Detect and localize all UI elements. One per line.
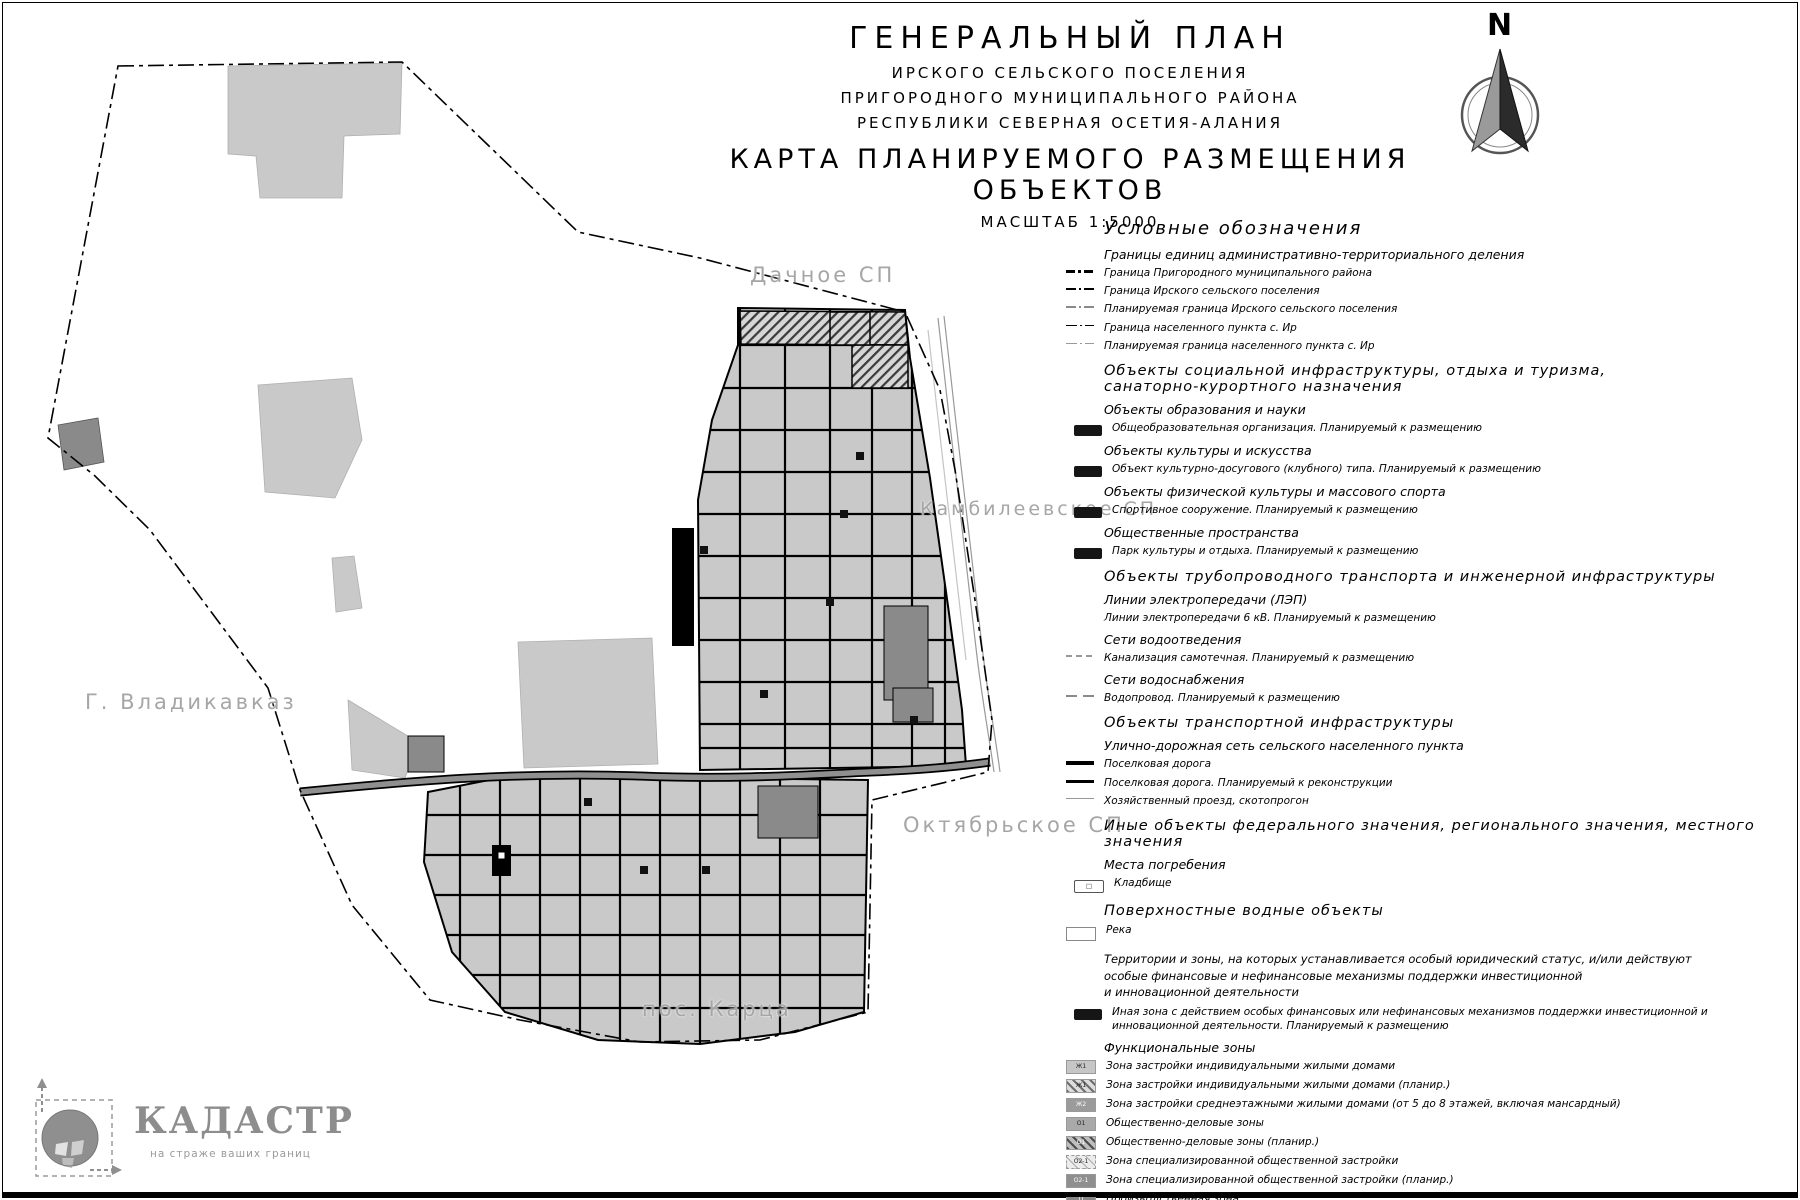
- legend-paragraph: Территории и зоны, на которых устанавлив…: [1066, 951, 1796, 1001]
- s-icon-cemetery-symbol: □: [1074, 880, 1104, 893]
- legend-subheader: Сети водоснабжения: [1066, 672, 1796, 687]
- legend-subheader: Функциональные зоны: [1066, 1040, 1796, 1055]
- legend-item: Хозяйственный проезд, скотопрогон: [1066, 794, 1796, 808]
- s-dashed-gray-symbol: [1066, 655, 1094, 657]
- legend-item: Общеобразовательная организация. Планиру…: [1066, 421, 1796, 436]
- legend: Условные обозначения Границы единиц адми…: [1066, 218, 1796, 1200]
- legend-zone: О1Общественно-деловые зоны (планир.): [1066, 1135, 1796, 1150]
- settlement-south: [408, 736, 870, 1050]
- legend-label: Зона специализированной общественной зас…: [1106, 1173, 1454, 1187]
- legend-subheader: Объекты образования и науки: [1066, 402, 1796, 417]
- legend-label: Граница Ирского сельского поселения: [1104, 284, 1320, 298]
- legend-item: Граница Пригородного муниципального райо…: [1066, 266, 1796, 280]
- legend-zone: Ж2Зона застройки среднеэтажными жилыми д…: [1066, 1097, 1796, 1112]
- legend-zone: О2-1Зона специализированной общественной…: [1066, 1173, 1796, 1188]
- legend-label: Границы единиц административно-территори…: [1104, 247, 1524, 262]
- z-o1-symbol: О1: [1066, 1117, 1096, 1131]
- logo-name: КАДАСТР: [134, 1100, 354, 1142]
- s-icon-black-symbol: [1074, 466, 1102, 477]
- legend-subheader: Сети водоотведения: [1066, 632, 1796, 647]
- legend-label: Иные объекты федерального значения, реги…: [1104, 818, 1796, 850]
- s-solid-thick-symbol: [1066, 761, 1094, 765]
- legend-label: Общеобразовательная организация. Планиру…: [1112, 421, 1482, 435]
- legend-sectionheader: Объекты социальной инфраструктуры, отдых…: [1066, 363, 1796, 395]
- legend-label: Парк культуры и отдыха. Планируемый к ра…: [1112, 544, 1418, 558]
- legend-label: Общественно-деловые зоны (планир.): [1106, 1135, 1319, 1149]
- legend-label: Линии электропередачи 6 кВ. Планируемый …: [1104, 611, 1436, 625]
- s-dashdot-gray-symbol: [1066, 306, 1094, 308]
- map-name: КАРТА ПЛАНИРУЕМОГО РАЗМЕЩЕНИЯ ОБЪЕКТОВ: [690, 144, 1450, 206]
- s-dashdot-symbol: [1066, 288, 1094, 290]
- legend-sectionheader: Объекты транспортной инфраструктуры: [1066, 715, 1796, 731]
- title-block: ГЕНЕРАЛЬНЫЙ ПЛАН ИРСКОГО СЕЛЬСКОГО ПОСЕЛ…: [690, 22, 1450, 232]
- legend-label: Объекты социальной инфраструктуры, отдых…: [1104, 363, 1606, 395]
- legend-item: Парк культуры и отдыха. Планируемый к ра…: [1066, 544, 1796, 559]
- legend-label: Граница Пригородного муниципального райо…: [1104, 266, 1372, 280]
- legend-label: Территории и зоны, на которых устанавлив…: [1104, 951, 1692, 1001]
- legend-label: Объект культурно-досугового (клубного) т…: [1112, 462, 1541, 476]
- plan-sheet: Дачное СП Камбилеевское СП Г. Владикавка…: [0, 0, 1800, 1200]
- plan-subtitle-settlement: ИРСКОГО СЕЛЬСКОГО ПОСЕЛЕНИЯ: [690, 65, 1450, 82]
- legend-label: Граница населенного пункта с. Ир: [1104, 321, 1297, 335]
- plan-title: ГЕНЕРАЛЬНЫЙ ПЛАН: [690, 22, 1450, 57]
- legend-label: Места погребения: [1104, 857, 1226, 872]
- s-none-symbol: [1066, 615, 1094, 616]
- map-label-vladikavkaz: Г. Владикавказ: [85, 690, 297, 714]
- legend-zone: О1Общественно-деловые зоны: [1066, 1116, 1796, 1131]
- z-o1p-symbol: О1: [1066, 1136, 1096, 1150]
- s-icon-black-symbol: [1074, 1009, 1102, 1020]
- z-zh2-symbol: Ж2: [1066, 1098, 1096, 1112]
- plan-subtitle-republic: РЕСПУБЛИКИ СЕВЕРНАЯ ОСЕТИЯ-АЛАНИЯ: [690, 115, 1450, 132]
- z-o21-symbol: О2-1: [1066, 1155, 1096, 1169]
- legend-label: Сети водоснабжения: [1104, 672, 1244, 687]
- legend-label: Зона застройки индивидуальными жилыми до…: [1106, 1059, 1395, 1073]
- z-o21p-symbol: О2-1: [1066, 1174, 1096, 1188]
- legend-item: □Кладбище: [1066, 876, 1796, 893]
- legend-item: Объект культурно-досугового (клубного) т…: [1066, 462, 1796, 477]
- legend-label: Планируемая граница населенного пункта с…: [1104, 339, 1375, 353]
- legend-label: Зона застройки среднеэтажными жилыми дом…: [1106, 1097, 1621, 1111]
- legend-item: Планируемая граница Ирского сельского по…: [1066, 302, 1796, 316]
- legend-subheader: Объекты физической культуры и массового …: [1066, 484, 1796, 499]
- legend-item: Поселковая дорога. Планируемый к реконст…: [1066, 776, 1796, 790]
- legend-item: Иная зона с действием особых финансовых …: [1066, 1005, 1796, 1033]
- legend-item: Водопровод. Планируемый к размещению: [1066, 691, 1796, 705]
- legend-item: Планируемая граница населенного пункта с…: [1066, 339, 1796, 353]
- legend-label: Поверхностные водные объекты: [1104, 903, 1384, 919]
- s-dashdot-thin-symbol: [1066, 325, 1094, 327]
- s-dashdot-bold-symbol: [1066, 270, 1094, 273]
- s-icon-black-symbol: [1074, 507, 1102, 518]
- legend-subheader: Объекты культуры и искусства: [1066, 443, 1796, 458]
- legend-subheader: Линии электропередачи (ЛЭП): [1066, 592, 1796, 607]
- legend-label: Иная зона с действием особых финансовых …: [1112, 1005, 1708, 1033]
- s-icon-black-symbol: [1074, 548, 1102, 559]
- legend-label: Хозяйственный проезд, скотопрогон: [1104, 794, 1309, 808]
- s-dashdot-gray-thin-symbol: [1066, 343, 1094, 345]
- legend-subheader: Границы единиц административно-территори…: [1066, 247, 1796, 262]
- legend-label: Водопровод. Планируемый к размещению: [1104, 691, 1340, 705]
- logo-tagline: на страже ваших границ: [150, 1148, 311, 1160]
- legend-sectionheader: Поверхностные водные объекты: [1066, 903, 1796, 919]
- legend-label: Поселковая дорога. Планируемый к реконст…: [1104, 776, 1393, 790]
- s-solid-thick-symbol: [1066, 780, 1094, 784]
- legend-zone: Ж1Зона застройки индивидуальными жилыми …: [1066, 1059, 1796, 1074]
- s-icon-black-symbol: [1074, 425, 1102, 436]
- legend-item: Река: [1066, 923, 1796, 941]
- legend-label: Улично-дорожная сеть сельского населенно…: [1104, 738, 1464, 753]
- legend-label: Линии электропередачи (ЛЭП): [1104, 592, 1307, 607]
- legend-label: Объекты транспортной инфраструктуры: [1104, 715, 1454, 731]
- s-solid-thin-gray-symbol: [1066, 798, 1094, 799]
- legend-label: Кладбище: [1114, 876, 1172, 890]
- legend-label: Объекты образования и науки: [1104, 402, 1306, 417]
- legend-item: Граница населенного пункта с. Ир: [1066, 321, 1796, 335]
- plan-subtitle-district: ПРИГОРОДНОГО МУНИЦИПАЛЬНОГО РАЙОНА: [690, 90, 1450, 107]
- legend-zone: О2-1Зона специализированной общественной…: [1066, 1154, 1796, 1169]
- z-zh1-symbol: Ж1: [1066, 1060, 1096, 1074]
- legend-label: Зона застройки индивидуальными жилыми до…: [1106, 1078, 1450, 1092]
- sheet-bottom-rule: [2, 1192, 1798, 1197]
- legend-subheader: Общественные пространства: [1066, 525, 1796, 540]
- legend-title: Условные обозначения: [1104, 218, 1796, 239]
- legend-sectionheader: Объекты трубопроводного транспорта и инж…: [1066, 569, 1796, 585]
- s-longdash-gray-symbol: [1066, 695, 1094, 697]
- legend-subheader: Места погребения: [1066, 857, 1796, 872]
- north-label: N: [1450, 8, 1550, 43]
- z-zh1p-symbol: Ж1: [1066, 1079, 1096, 1093]
- legend-label: Канализация самотечная. Планируемый к ра…: [1104, 651, 1414, 665]
- dark-patch-west: [58, 418, 104, 470]
- legend-label: Объекты культуры и искусства: [1104, 443, 1312, 458]
- legend-label: Функциональные зоны: [1104, 1040, 1255, 1055]
- legend-item: Линии электропередачи 6 кВ. Планируемый …: [1066, 611, 1796, 625]
- legend-blocks: Границы единиц административно-территори…: [1066, 247, 1796, 1200]
- legend-label: Река: [1106, 923, 1132, 937]
- map-label-dachnoe-sp: Дачное СП: [750, 263, 895, 287]
- kadastr-logo: КАДАСТР на страже ваших границ: [22, 1072, 352, 1182]
- legend-item: Спортивное сооружение. Планируемый к раз…: [1066, 503, 1796, 518]
- legend-label: Поселковая дорога: [1104, 757, 1211, 771]
- legend-label: Планируемая граница Ирского сельского по…: [1104, 302, 1397, 316]
- pasture-patches: [228, 63, 658, 778]
- legend-item: Граница Ирского сельского поселения: [1066, 284, 1796, 298]
- compass-rose-icon: [1450, 43, 1550, 173]
- map-label-karca: пос. Карца: [642, 997, 792, 1021]
- legend-label: Спортивное сооружение. Планируемый к раз…: [1112, 503, 1418, 517]
- legend-item: Поселковая дорога: [1066, 757, 1796, 771]
- kadastr-globe-icon: [22, 1072, 132, 1182]
- legend-label: Сети водоотведения: [1104, 632, 1241, 647]
- north-arrow: N: [1450, 8, 1550, 173]
- legend-zone: Ж1Зона застройки индивидуальными жилыми …: [1066, 1078, 1796, 1093]
- legend-label: Объекты физической культуры и массового …: [1104, 484, 1446, 499]
- legend-subheader: Улично-дорожная сеть сельского населенно…: [1066, 738, 1796, 753]
- legend-label: Общественно-деловые зоны: [1106, 1116, 1264, 1130]
- legend-item: Канализация самотечная. Планируемый к ра…: [1066, 651, 1796, 665]
- legend-label: Зона специализированной общественной зас…: [1106, 1154, 1398, 1168]
- legend-sectionheader: Иные объекты федерального значения, реги…: [1066, 818, 1796, 850]
- s-swatch-white-symbol: [1066, 927, 1096, 941]
- legend-label: Объекты трубопроводного транспорта и инж…: [1104, 569, 1716, 585]
- legend-label: Общественные пространства: [1104, 525, 1299, 540]
